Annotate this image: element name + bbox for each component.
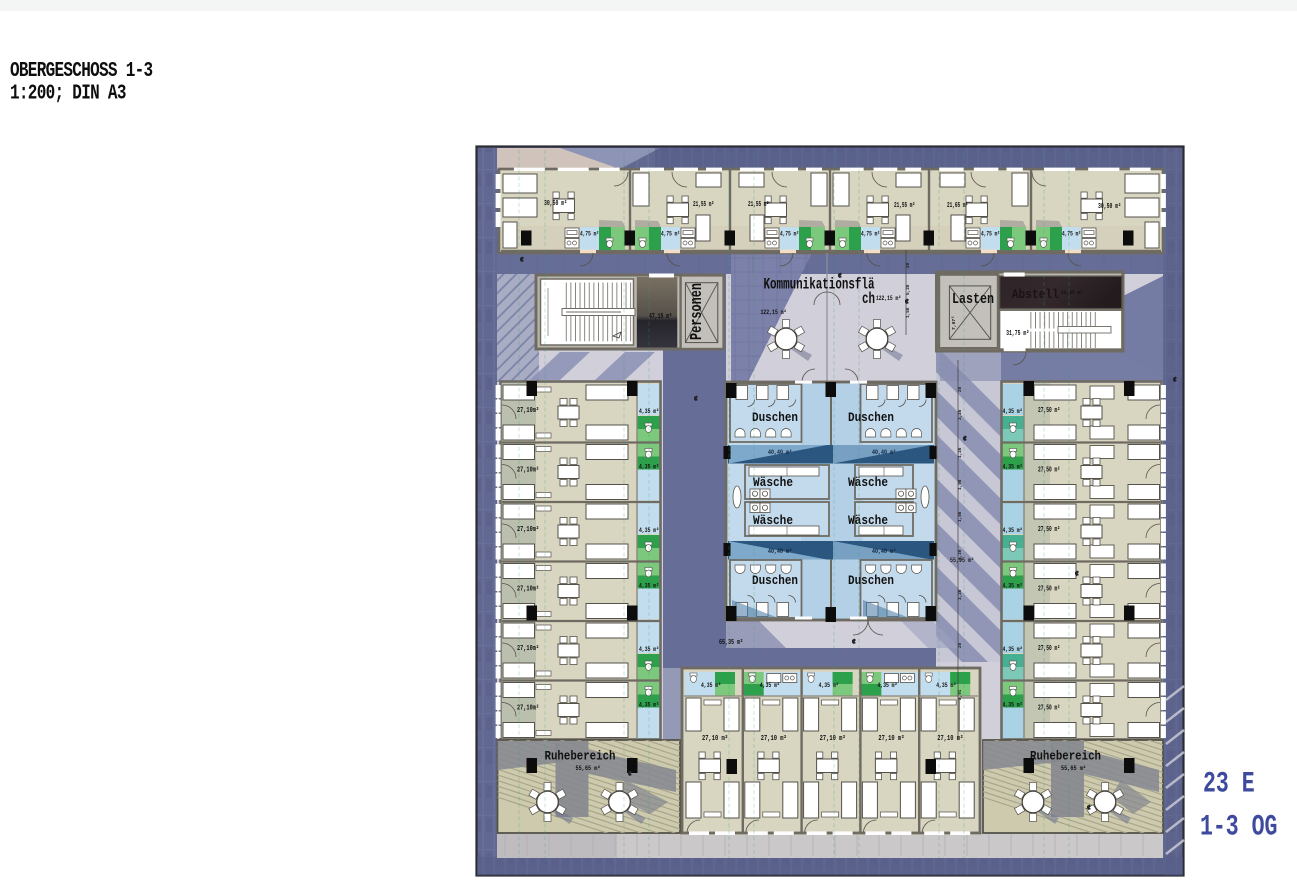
svg-text:31,75 m²: 31,75 m² bbox=[1006, 330, 1029, 338]
svg-text:Duschen: Duschen bbox=[848, 410, 894, 425]
svg-text:40,40 m²: 40,40 m² bbox=[768, 449, 792, 456]
svg-text:27,10 m²: 27,10 m² bbox=[761, 734, 787, 743]
svg-text:55,65 m²: 55,65 m² bbox=[1061, 765, 1086, 772]
svg-text:27,50 m²: 27,50 m² bbox=[1038, 704, 1060, 713]
svg-text:27,50 m²: 27,50 m² bbox=[1038, 585, 1060, 594]
svg-text:Wäsche: Wäsche bbox=[848, 475, 888, 490]
svg-text:4,35 m²: 4,35 m² bbox=[1003, 702, 1023, 709]
svg-text:1,98: 1,98 bbox=[957, 479, 963, 490]
svg-text:4,35 m²: 4,35 m² bbox=[1003, 646, 1023, 653]
svg-text:27,10m²: 27,10m² bbox=[517, 406, 539, 415]
svg-text:122,15 m²: 122,15 m² bbox=[761, 309, 787, 316]
svg-text:27,10 m²: 27,10 m² bbox=[937, 734, 963, 743]
svg-text:27,10 m²: 27,10 m² bbox=[820, 734, 846, 743]
svg-text:2,91: 2,91 bbox=[957, 689, 963, 700]
svg-text:40,40 m²: 40,40 m² bbox=[768, 548, 792, 555]
svg-text:3,26: 3,26 bbox=[957, 589, 963, 600]
svg-text:Wäsche: Wäsche bbox=[753, 513, 793, 528]
svg-text:Personen: Personen bbox=[688, 283, 707, 340]
svg-text:27,10m²: 27,10m² bbox=[517, 704, 539, 713]
svg-text:7,67²: 7,67² bbox=[951, 316, 957, 330]
svg-text:4,35 m²: 4,35 m² bbox=[760, 682, 780, 689]
svg-text:30,50 m²: 30,50 m² bbox=[544, 199, 567, 208]
svg-text:4,35 m²: 4,35 m² bbox=[877, 682, 897, 689]
svg-text:5,20: 5,20 bbox=[905, 284, 911, 295]
svg-text:Wäsche: Wäsche bbox=[848, 513, 888, 528]
svg-text:27,10m²: 27,10m² bbox=[517, 525, 539, 534]
svg-text:1,20: 1,20 bbox=[957, 447, 963, 458]
svg-text:4,75 m²: 4,75 m² bbox=[580, 231, 599, 238]
svg-text:13,95 m²: 13,95 m² bbox=[1061, 290, 1083, 296]
svg-text:21,65 m²: 21,65 m² bbox=[947, 201, 968, 210]
svg-text:27,10m²: 27,10m² bbox=[517, 644, 539, 653]
svg-text:Wäsche: Wäsche bbox=[753, 475, 793, 490]
svg-text:55,65 m²: 55,65 m² bbox=[576, 765, 601, 772]
svg-text:27,10m²: 27,10m² bbox=[517, 466, 539, 475]
svg-text:4,75 m²: 4,75 m² bbox=[861, 231, 880, 238]
svg-text:27,10m²: 27,10m² bbox=[517, 585, 539, 594]
svg-text:4,75 m²: 4,75 m² bbox=[981, 231, 1000, 238]
svg-text:20: 20 bbox=[957, 387, 963, 392]
svg-text:Duschen: Duschen bbox=[752, 573, 798, 588]
svg-text:122,15 m²: 122,15 m² bbox=[876, 295, 901, 302]
svg-text:4,75 m²: 4,75 m² bbox=[1062, 231, 1081, 238]
svg-text:27,50 m²: 27,50 m² bbox=[1038, 644, 1060, 653]
svg-text:Kommunikationsflä: Kommunikationsflä bbox=[764, 276, 875, 294]
svg-text:27,10 m²: 27,10 m² bbox=[702, 734, 728, 743]
svg-text:4,75 m²: 4,75 m² bbox=[780, 231, 799, 238]
svg-text:27,50 m²: 27,50 m² bbox=[1038, 525, 1060, 534]
svg-text:30,50 m²: 30,50 m² bbox=[1098, 202, 1121, 211]
svg-text:27,10 m²: 27,10 m² bbox=[878, 734, 904, 743]
svg-text:27,50 m²: 27,50 m² bbox=[1038, 466, 1060, 475]
svg-text:21,55 m²: 21,55 m² bbox=[748, 200, 769, 209]
svg-text:Abstell: Abstell bbox=[1012, 287, 1059, 302]
svg-text:4,35 m²: 4,35 m² bbox=[1003, 464, 1023, 471]
svg-text:Ruhebereich: Ruhebereich bbox=[545, 750, 616, 764]
svg-text:21,55 m²: 21,55 m² bbox=[894, 201, 915, 210]
svg-text:21,55 m²: 21,55 m² bbox=[693, 200, 714, 209]
svg-text:65,35 m²: 65,35 m² bbox=[719, 639, 743, 647]
svg-text:4,75 m²: 4,75 m² bbox=[661, 231, 680, 238]
svg-text:4,35 m²: 4,35 m² bbox=[701, 682, 721, 689]
svg-text:55,95 m²: 55,95 m² bbox=[950, 557, 974, 564]
svg-text:20: 20 bbox=[905, 263, 911, 268]
svg-text:4,35 m²: 4,35 m² bbox=[1003, 408, 1023, 415]
svg-text:40,40 m²: 40,40 m² bbox=[872, 548, 896, 555]
svg-text:Duschen: Duschen bbox=[848, 573, 894, 588]
svg-text:47,15 m²: 47,15 m² bbox=[649, 313, 672, 321]
svg-text:27,50 m²: 27,50 m² bbox=[1038, 406, 1060, 415]
svg-text:40,40 m²: 40,40 m² bbox=[872, 449, 896, 456]
svg-text:1,50: 1,50 bbox=[905, 307, 911, 318]
svg-text:20: 20 bbox=[957, 643, 963, 648]
svg-text:4,35 m²: 4,35 m² bbox=[1003, 583, 1023, 590]
svg-text:ch: ch bbox=[862, 290, 875, 308]
svg-text:4,35 m²: 4,35 m² bbox=[1003, 527, 1023, 534]
svg-text:Ruhebereich: Ruhebereich bbox=[1030, 750, 1101, 764]
svg-text:1,86: 1,86 bbox=[957, 511, 963, 522]
svg-text:Lasten: Lasten bbox=[952, 291, 994, 308]
svg-text:4,35 m²: 4,35 m² bbox=[819, 682, 839, 689]
svg-text:Duschen: Duschen bbox=[752, 410, 798, 425]
svg-text:3,26: 3,26 bbox=[957, 409, 963, 420]
